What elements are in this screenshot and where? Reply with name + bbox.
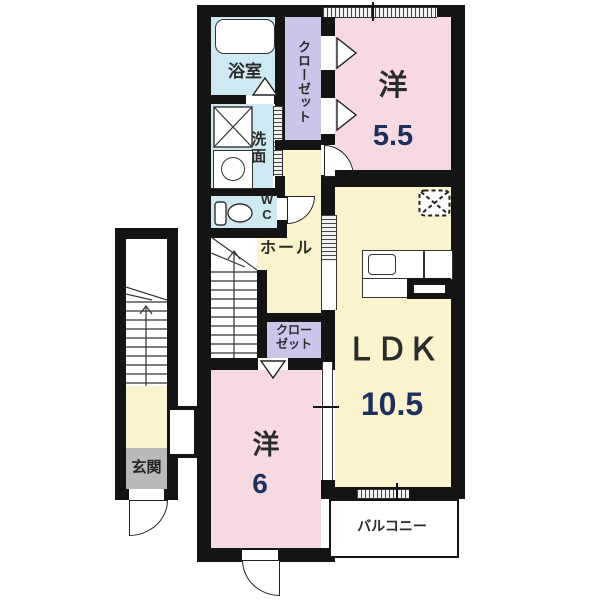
closet-door-triangle-icon (335, 37, 358, 70)
kitchen-counter-divider (423, 250, 425, 278)
closet-upper-opening-1 (321, 36, 335, 70)
west6-door-arc-icon (242, 560, 280, 596)
stairs-external-icon (126, 280, 167, 388)
wall-west6-right-lower (321, 480, 335, 499)
wall-closet-lower-left (257, 313, 267, 358)
kitchen-sink-icon (368, 254, 396, 275)
closet-lower-label: クローゼット (267, 324, 321, 352)
western6-size: 6 (205, 468, 315, 500)
ldk-size: 10.5 (333, 386, 451, 423)
entrance-upper-landing (126, 386, 167, 448)
kitchen-range-slot (414, 285, 445, 293)
wall-under-west55 (335, 170, 451, 187)
closet-lower-triangle-icon (259, 360, 287, 380)
wall-right (451, 5, 465, 499)
west6-ldk-partition (322, 362, 333, 480)
closet-lower-line1: クロー (276, 323, 312, 337)
window-ldk-balcony-icon (357, 489, 409, 499)
closet-upper-label: クローゼット (295, 24, 310, 140)
western55-label: 洋 (335, 70, 451, 103)
wc-door-gap (277, 198, 287, 220)
hall-ldk-opening (321, 262, 337, 310)
balcony-label: バルコニー (329, 518, 455, 534)
entrance-notch (170, 410, 194, 454)
vanity-sink-icon (221, 157, 245, 181)
closet-lower-line2: ゼット (276, 337, 312, 351)
entrance-door-gap (129, 489, 164, 500)
entrance-door-arc-icon (129, 500, 168, 536)
bathtub-icon (215, 19, 275, 54)
wc-label-w: W (261, 192, 273, 207)
window-top-icon (323, 7, 437, 18)
stairs-internal-icon (211, 233, 257, 358)
wall-hall-bottom (257, 313, 335, 322)
washroom-label: 洗面 (249, 116, 266, 180)
entrance-label: 玄関 (124, 459, 169, 476)
window-top-tick (372, 2, 374, 21)
washer-pan-icon (213, 106, 253, 148)
wc-label: WC (258, 193, 276, 223)
closet-upper-opening-2 (321, 98, 335, 134)
west6-door-gap (242, 550, 278, 560)
bathroom-label: 浴室 (216, 62, 274, 82)
floor-plan: 浴室 洗面 WC クローゼット ホール クローゼット 洋 5.5 ＬＤＫ 10.… (0, 0, 600, 600)
hall-ldk-door-icon (321, 215, 337, 262)
western6-label: 洋 (211, 430, 321, 461)
toilet-icon (214, 199, 254, 229)
western55-size: 5.5 (335, 120, 451, 153)
hall-label: ホール (255, 240, 319, 258)
ldk-label: ＬＤＫ (333, 332, 451, 368)
kitchen-lower-cabinet-icon (362, 278, 409, 298)
fridge-hatch-icon (418, 189, 451, 217)
wc-label-c: C (262, 207, 271, 222)
